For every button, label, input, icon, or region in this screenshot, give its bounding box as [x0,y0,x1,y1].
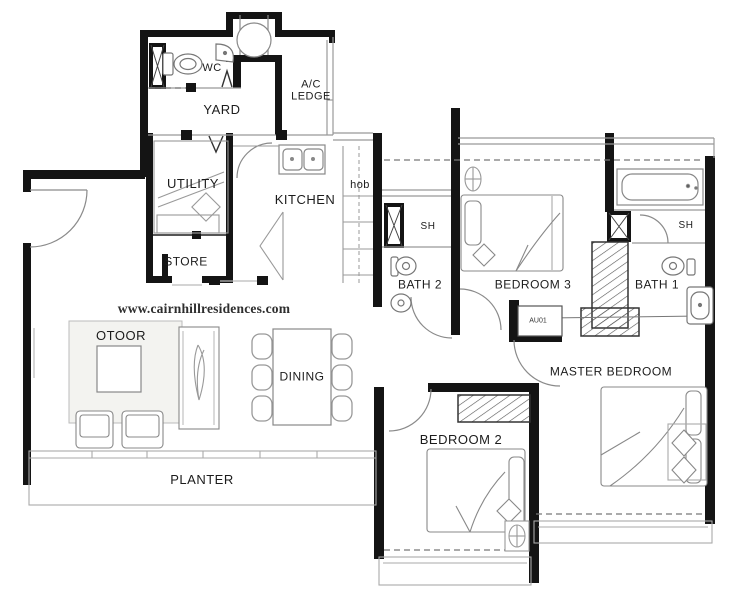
room-label-living: OTOOR [96,329,146,343]
room-label-bedroom3: BEDROOM 3 [495,279,572,292]
room-label-ac-ledge: A/C LEDGE [291,79,331,102]
bedroom3-aircon-unit [465,167,481,191]
bedroom2-ledge [379,557,531,585]
room-label-bedroom2: BEDROOM 2 [420,433,503,447]
room-label-planter: PLANTER [170,473,233,487]
label-shower-bath2: SH [421,222,436,233]
master-bed [601,387,707,486]
bath1-toilet [662,257,695,275]
floor-plan-drawing [0,0,736,600]
living-coffee-table [97,346,141,392]
label-shower-bath1: SH [679,221,694,232]
room-label-store: STORE [164,256,208,269]
room-label-bath1: BATH 1 [635,279,679,292]
bedroom2-bed [427,449,525,532]
wc-toilet [163,53,202,75]
bedroom3-bed [461,195,563,271]
room-label-master-bedroom: MASTER BEDROOM [550,366,672,379]
bath1-sink [687,287,713,324]
floor-plan: www.cairnhillresidences.com WC YARD A/C … [0,0,736,600]
room-label-dining: DINING [280,371,325,384]
wc-basin [216,44,233,62]
top-bay-column [237,15,271,57]
label-hob: hob [350,180,370,192]
room-label-wc: WC [202,63,221,75]
room-label-utility: UTILITY [167,177,219,191]
kitchen-sink [279,145,325,174]
room-label-yard: YARD [203,103,240,117]
wardrobe-note-label: AU01 [529,317,547,324]
master-ledge [534,521,712,543]
room-label-kitchen: KITCHEN [275,193,336,207]
bath2-toilet [391,257,416,276]
room-label-bath2: BATH 2 [398,279,442,292]
bedroom2-aircon-unit [505,521,529,551]
living-sideboard [179,327,219,429]
bath1-bathtub [617,169,703,205]
watermark-text: www.cairnhillresidences.com [118,301,290,317]
bath2-basin [391,294,411,312]
